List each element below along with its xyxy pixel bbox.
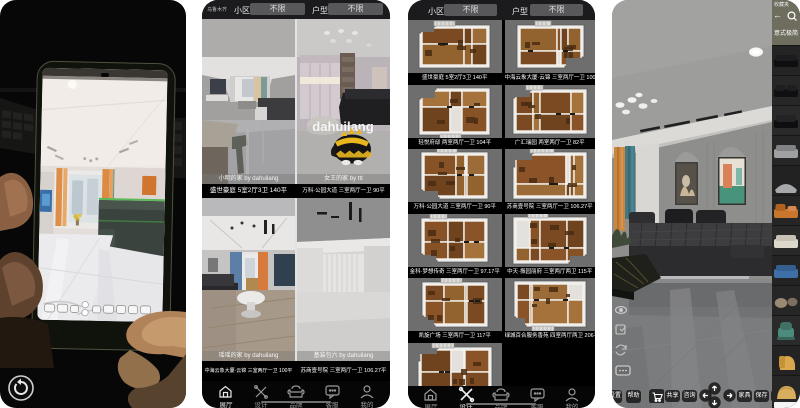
svg-text:dahuilang: dahuilang [312,119,373,134]
